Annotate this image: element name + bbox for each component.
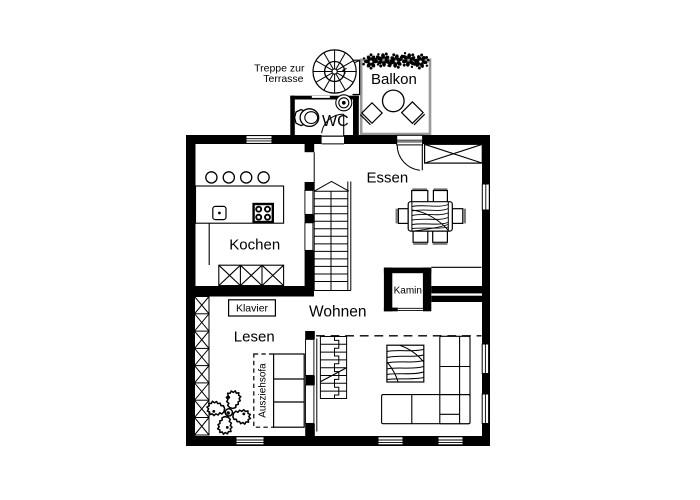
svg-text:Essen: Essen — [367, 170, 409, 187]
svg-text:Lesen: Lesen — [234, 329, 275, 346]
svg-text:Kamin: Kamin — [394, 285, 422, 296]
svg-text:Klavier: Klavier — [236, 303, 269, 315]
svg-text:Terrasse: Terrasse — [263, 73, 303, 85]
svg-text:Balkon: Balkon — [371, 71, 417, 88]
svg-text:Kochen: Kochen — [229, 237, 280, 254]
svg-text:Ausziehsofa: Ausziehsofa — [257, 363, 268, 418]
svg-text:Wohnen: Wohnen — [309, 304, 366, 321]
